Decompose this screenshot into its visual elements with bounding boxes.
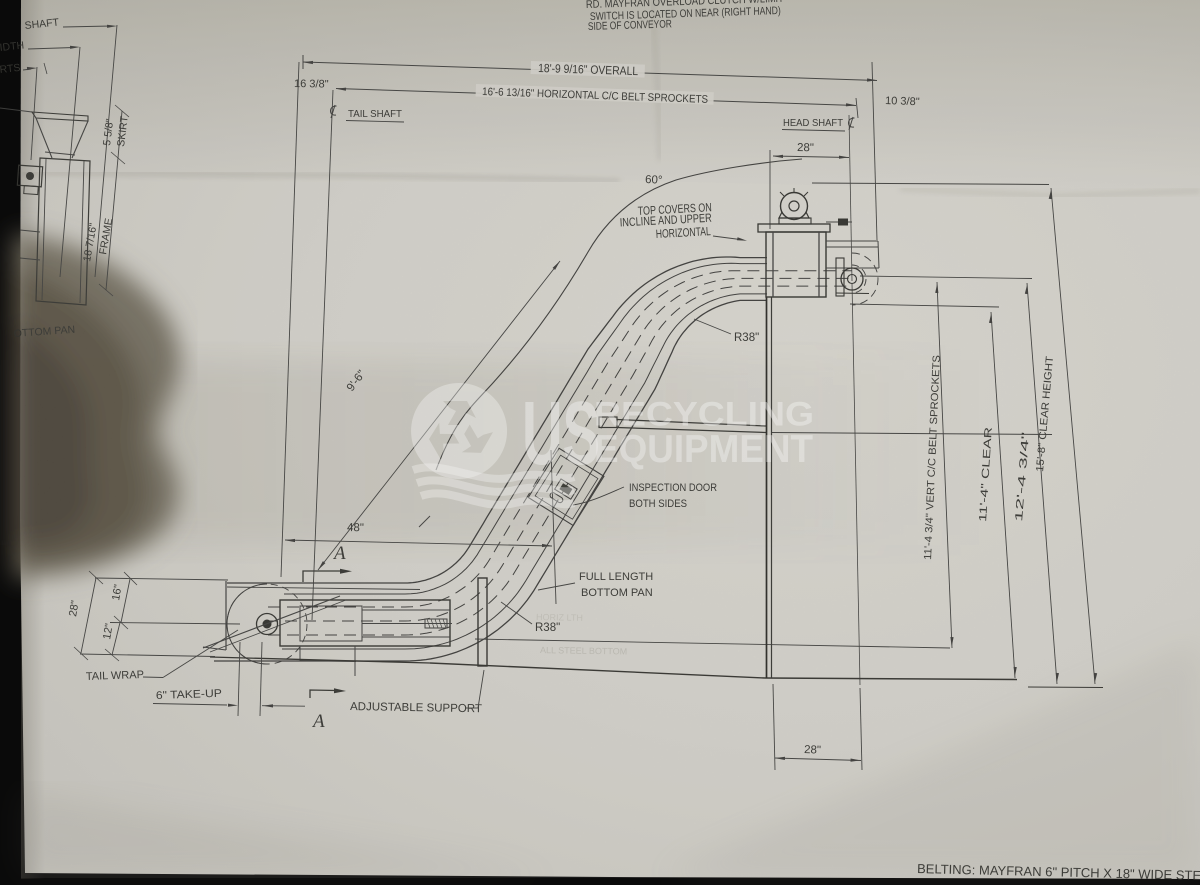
svg-text:RTS: RTS — [0, 62, 21, 76]
svg-text:IDTH: IDTH — [0, 39, 25, 53]
